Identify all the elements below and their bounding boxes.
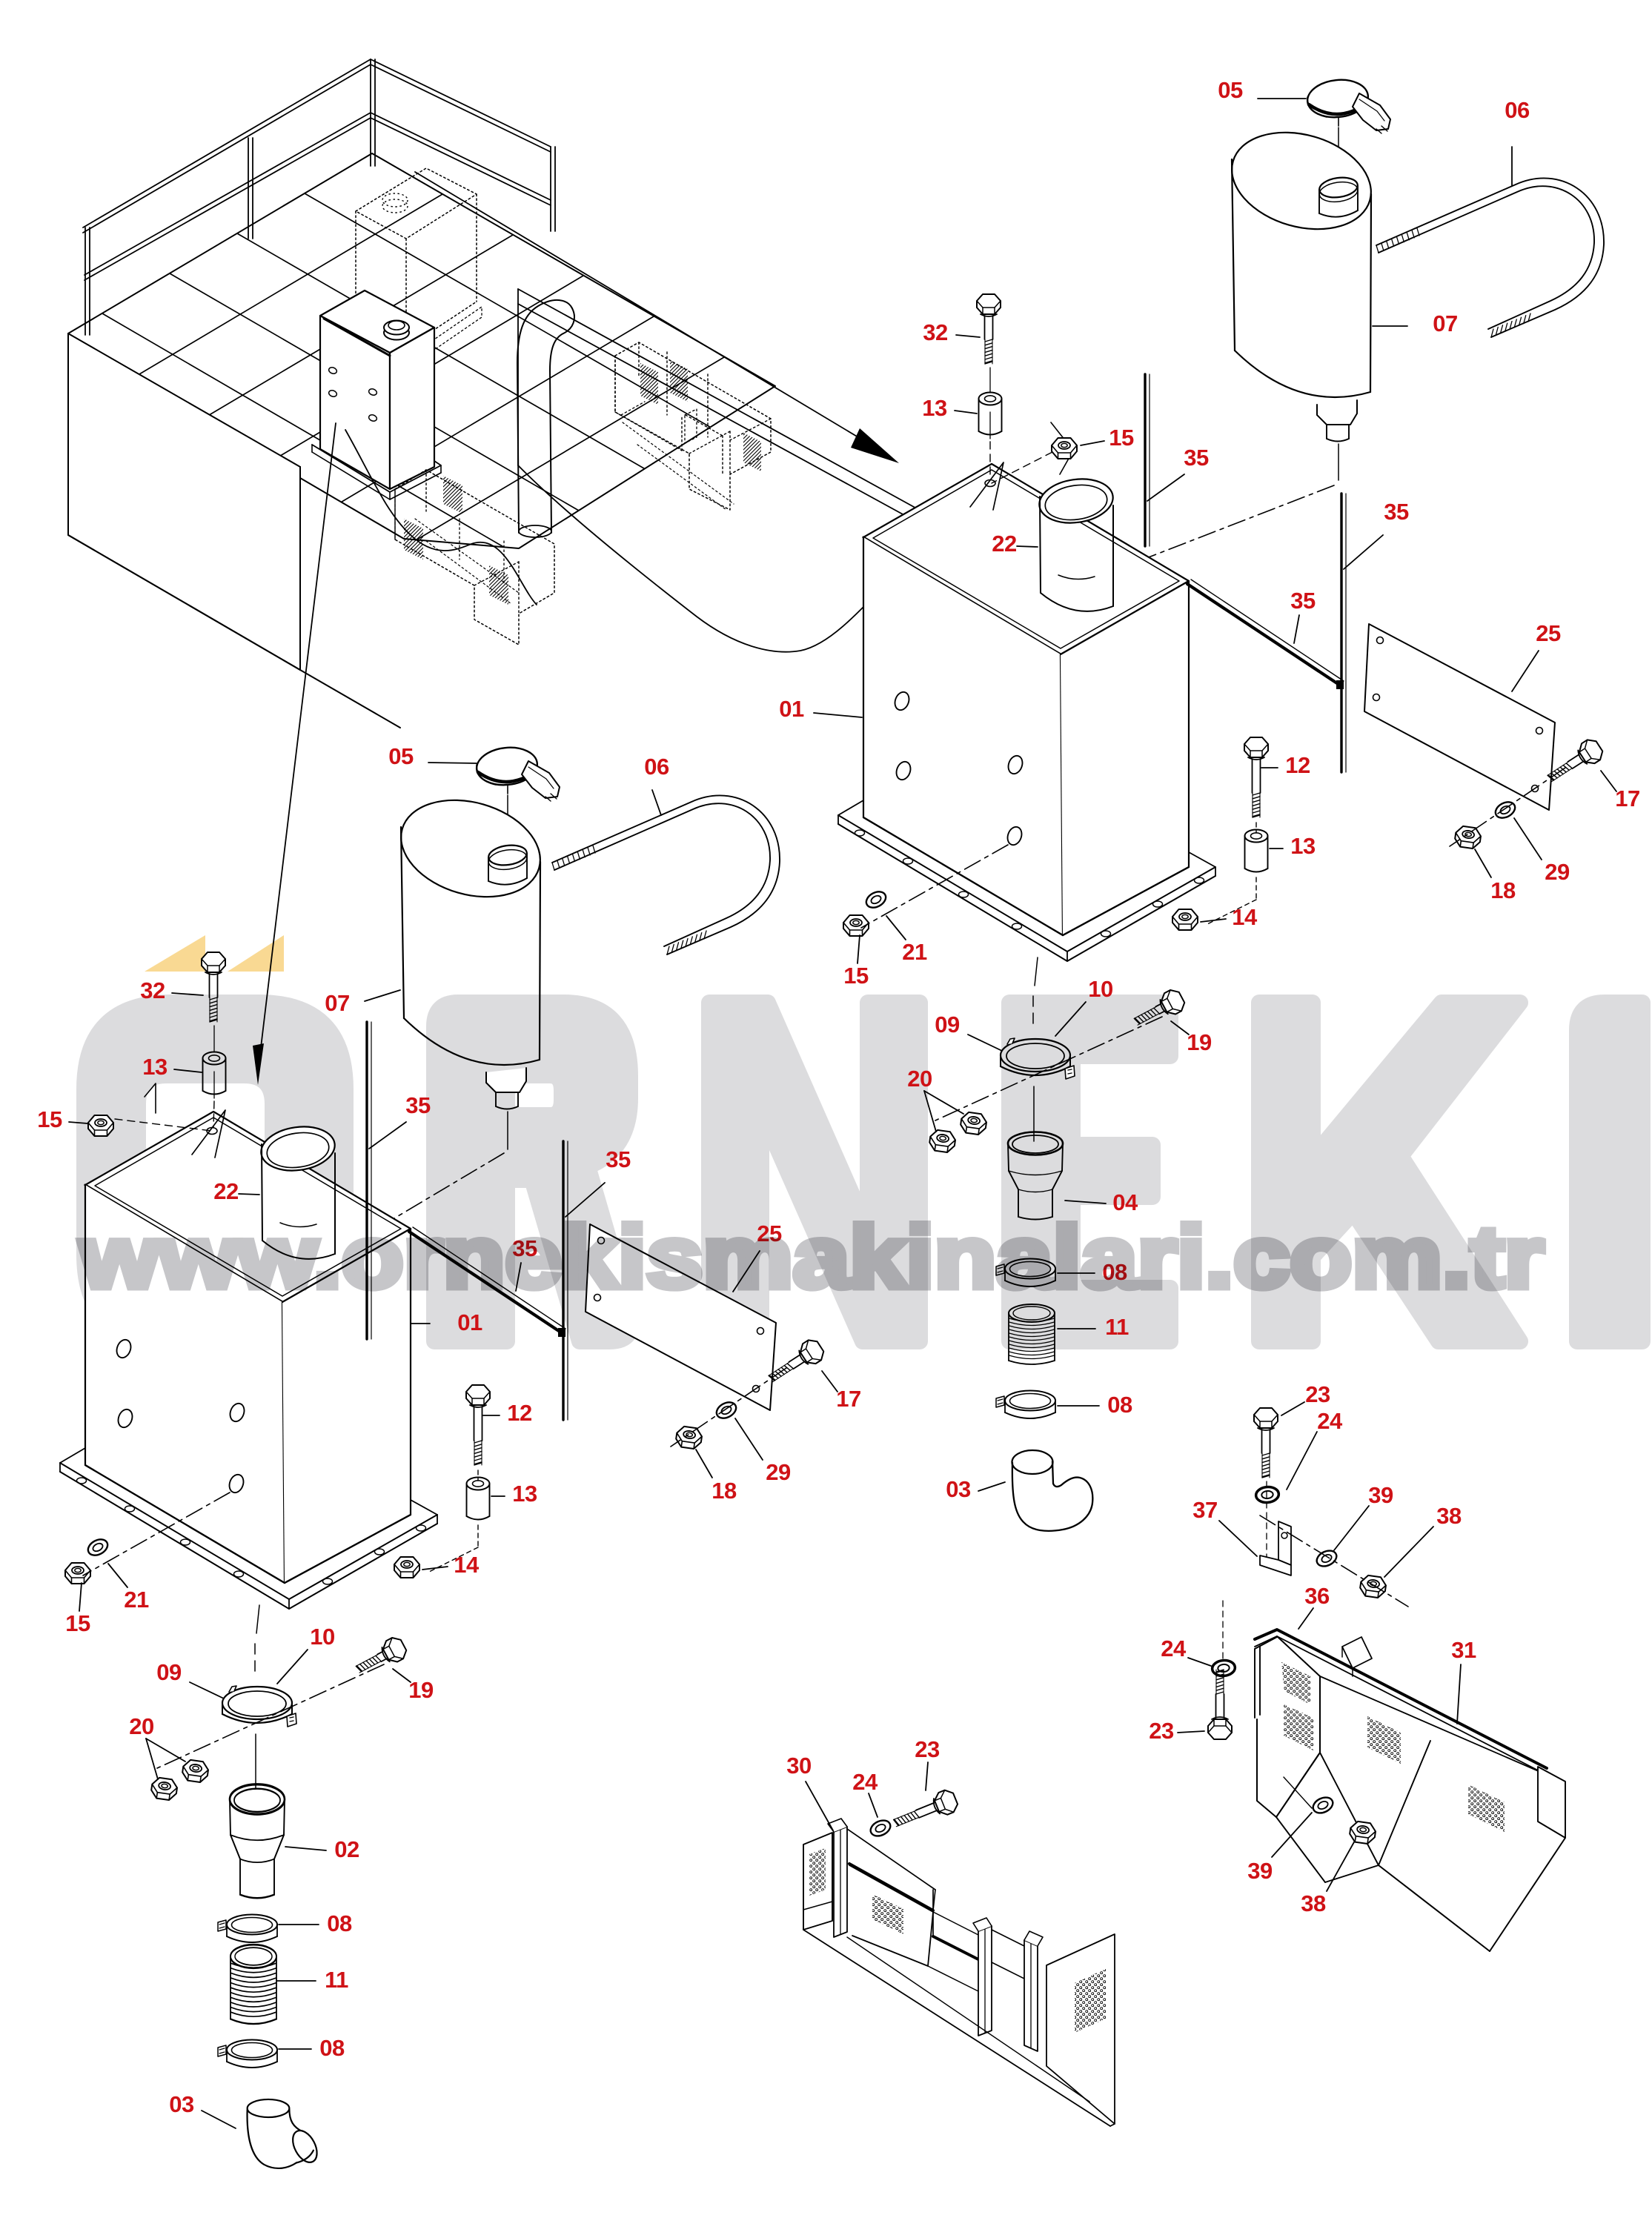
svg-text:08: 08 — [327, 1910, 352, 1936]
svg-text:31: 31 — [1451, 1637, 1476, 1663]
svg-text:03: 03 — [169, 2091, 194, 2117]
svg-text:03: 03 — [946, 1476, 971, 1502]
svg-text:21: 21 — [902, 939, 927, 965]
svg-text:10: 10 — [1088, 976, 1112, 1002]
svg-text:13: 13 — [512, 1481, 537, 1507]
svg-text:24: 24 — [852, 1769, 878, 1795]
svg-text:23: 23 — [1149, 1718, 1174, 1744]
svg-text:25: 25 — [1536, 620, 1561, 646]
svg-text:21: 21 — [124, 1587, 149, 1613]
svg-text:13: 13 — [142, 1054, 167, 1080]
svg-text:38: 38 — [1301, 1890, 1326, 1916]
svg-text:35: 35 — [405, 1092, 431, 1118]
svg-text:20: 20 — [129, 1713, 153, 1739]
svg-text:24: 24 — [1317, 1408, 1343, 1434]
svg-text:19: 19 — [1187, 1029, 1212, 1055]
svg-text:18: 18 — [1490, 877, 1516, 903]
svg-text:01: 01 — [779, 696, 804, 722]
svg-text:38: 38 — [1436, 1503, 1462, 1529]
svg-text:35: 35 — [606, 1146, 631, 1172]
svg-text:11: 11 — [1105, 1314, 1129, 1340]
svg-text:15: 15 — [65, 1610, 90, 1636]
svg-text:12: 12 — [1285, 752, 1310, 778]
svg-text:05: 05 — [1218, 77, 1243, 103]
svg-text:10: 10 — [310, 1624, 334, 1650]
svg-text:11: 11 — [325, 1967, 348, 1993]
svg-text:30: 30 — [786, 1753, 811, 1779]
svg-text:35: 35 — [1290, 588, 1316, 614]
svg-text:06: 06 — [644, 754, 669, 780]
svg-text:32: 32 — [923, 319, 947, 345]
svg-text:05: 05 — [388, 743, 414, 769]
svg-text:06: 06 — [1505, 97, 1530, 123]
svg-text:14: 14 — [1232, 904, 1258, 930]
svg-text:01: 01 — [457, 1309, 482, 1335]
svg-text:17: 17 — [1615, 786, 1639, 811]
svg-text:32: 32 — [140, 977, 165, 1003]
svg-text:14: 14 — [454, 1552, 480, 1578]
svg-text:23: 23 — [915, 1736, 940, 1762]
svg-text:39: 39 — [1247, 1858, 1273, 1884]
svg-text:12: 12 — [507, 1400, 531, 1426]
svg-text:18: 18 — [711, 1478, 737, 1504]
svg-text:07: 07 — [1433, 311, 1457, 336]
svg-text:37: 37 — [1192, 1497, 1217, 1523]
svg-text:02: 02 — [334, 1836, 359, 1862]
svg-text:07: 07 — [325, 990, 349, 1016]
svg-text:39: 39 — [1368, 1482, 1393, 1508]
svg-text:17: 17 — [836, 1386, 860, 1412]
svg-text:19: 19 — [408, 1677, 434, 1703]
svg-text:13: 13 — [1290, 833, 1316, 859]
svg-text:09: 09 — [156, 1659, 182, 1685]
svg-text:29: 29 — [1545, 859, 1570, 885]
svg-text:29: 29 — [766, 1459, 791, 1485]
svg-text:15: 15 — [1109, 425, 1134, 451]
svg-text:09: 09 — [935, 1012, 960, 1037]
svg-text:35: 35 — [1184, 445, 1209, 471]
svg-text:23: 23 — [1305, 1381, 1330, 1407]
svg-text:15: 15 — [37, 1106, 62, 1132]
svg-text:24: 24 — [1161, 1636, 1187, 1661]
svg-text:20: 20 — [907, 1066, 932, 1092]
svg-text:22: 22 — [992, 531, 1016, 557]
svg-text:22: 22 — [213, 1178, 238, 1204]
svg-text:13: 13 — [922, 395, 947, 421]
svg-text:15: 15 — [843, 963, 869, 989]
svg-text:08: 08 — [1107, 1392, 1132, 1418]
svg-text:08: 08 — [319, 2035, 345, 2061]
svg-text:www.ornekismakinalari.com.tr: www.ornekismakinalari.com.tr — [79, 1209, 1544, 1306]
svg-text:36: 36 — [1304, 1583, 1330, 1609]
svg-text:35: 35 — [1384, 499, 1409, 525]
